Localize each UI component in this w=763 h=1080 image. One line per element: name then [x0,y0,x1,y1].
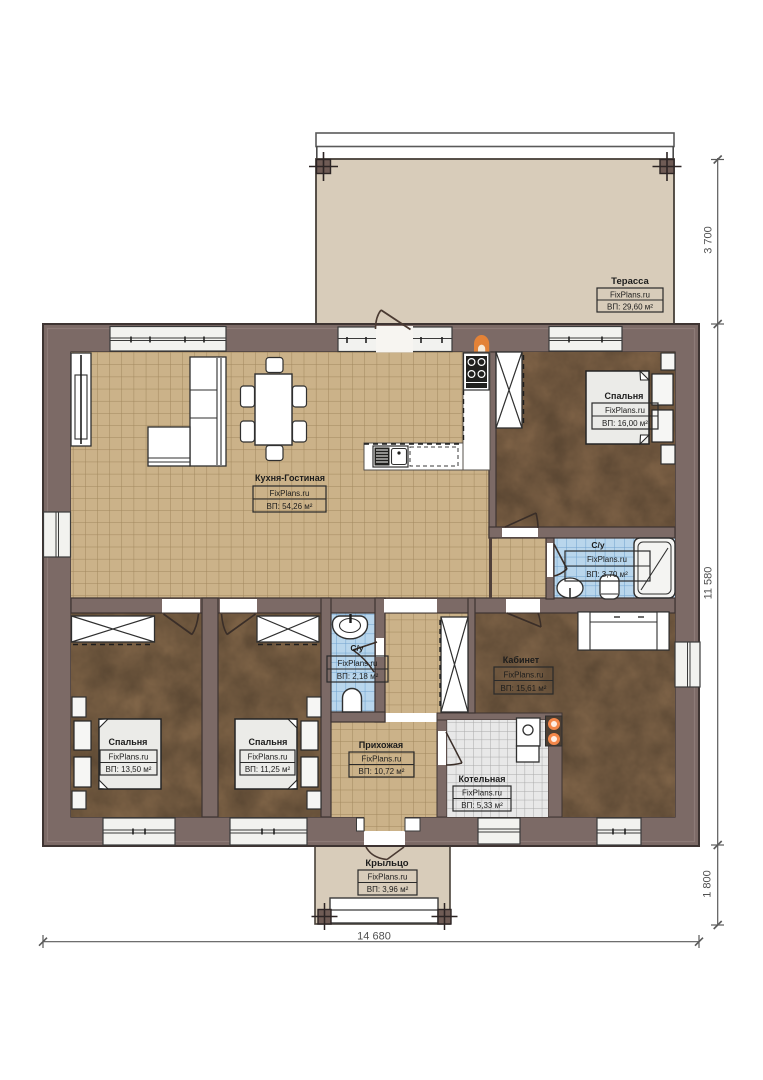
svg-text:ВП: 2,18 м²: ВП: 2,18 м² [337,672,379,681]
svg-text:14 680: 14 680 [357,931,391,943]
svg-text:FixPlans.ru: FixPlans.ru [503,671,543,680]
svg-text:FixPlans.ru: FixPlans.ru [605,406,645,415]
svg-text:Терасса: Терасса [611,276,649,287]
svg-text:С/у: С/у [350,643,364,653]
svg-text:Спальня: Спальня [605,391,644,401]
svg-text:ВП: 11,25 м²: ВП: 11,25 м² [245,765,291,774]
svg-text:ВП: 10,72 м²: ВП: 10,72 м² [359,767,405,776]
svg-text:ВП: 15,61 м²: ВП: 15,61 м² [501,684,547,693]
svg-text:ВП: 13,50 м²: ВП: 13,50 м² [106,765,152,774]
svg-text:FixPlans.ru: FixPlans.ru [247,753,287,762]
svg-text:FixPlans.ru: FixPlans.ru [108,753,148,762]
svg-text:FixPlans.ru: FixPlans.ru [337,659,377,668]
svg-text:ВП: 29,60 м²: ВП: 29,60 м² [607,303,653,312]
svg-text:Крыльцо: Крыльцо [365,858,408,869]
svg-text:Спальня: Спальня [249,737,288,747]
svg-text:11 580: 11 580 [703,567,715,600]
svg-text:ВП: 54,26 м²: ВП: 54,26 м² [267,502,313,511]
svg-text:3 700: 3 700 [703,226,715,254]
svg-text:Кухня-Гостиная: Кухня-Гостиная [255,473,325,483]
svg-text:ВП: 16,00 м²: ВП: 16,00 м² [602,419,648,428]
svg-text:1 800: 1 800 [702,870,714,898]
svg-text:Спальня: Спальня [109,737,148,747]
svg-text:FixPlans.ru: FixPlans.ru [462,789,502,798]
svg-text:Котельная: Котельная [458,774,505,784]
svg-text:Прихожая: Прихожая [359,740,403,750]
svg-text:FixPlans.ru: FixPlans.ru [269,489,309,498]
svg-text:FixPlans.ru: FixPlans.ru [610,291,650,300]
svg-text:С/у: С/у [591,540,605,550]
svg-text:FixPlans.ru: FixPlans.ru [587,555,627,564]
svg-text:ВП: 3,96 м²: ВП: 3,96 м² [367,885,409,894]
svg-text:ВП: 3,70 м²: ВП: 3,70 м² [586,570,628,579]
svg-text:FixPlans.ru: FixPlans.ru [367,873,407,882]
svg-text:Кабинет: Кабинет [503,655,540,665]
svg-text:ВП: 5,33 м²: ВП: 5,33 м² [461,801,503,810]
svg-text:FixPlans.ru: FixPlans.ru [361,755,401,764]
